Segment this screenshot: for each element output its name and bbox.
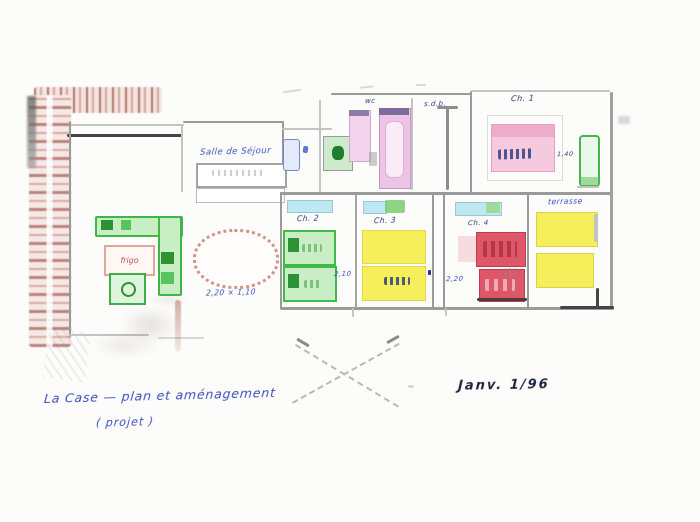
pencil-mark bbox=[369, 152, 377, 166]
bed-topright-pillow-band bbox=[492, 125, 554, 137]
sideboard-lower bbox=[196, 188, 285, 203]
bed-red-1 bbox=[476, 232, 526, 267]
t-wall-cap bbox=[437, 106, 458, 109]
bed-yellow-1 bbox=[362, 230, 426, 264]
wall-living-top-inner bbox=[67, 134, 183, 137]
lounger-2 bbox=[536, 253, 594, 288]
bed-red-pillow-pale bbox=[458, 236, 476, 262]
bed-green-2 bbox=[283, 266, 337, 302]
cross-speck bbox=[408, 385, 414, 388]
pencil-tick-b bbox=[416, 84, 426, 86]
kitchen-appliance-mark-1 bbox=[101, 220, 113, 230]
bed-green-1 bbox=[283, 230, 336, 266]
bedroom-green-label: Ch. 2 bbox=[297, 214, 320, 224]
t-wall-vertical bbox=[446, 108, 449, 190]
wall-room-divider-2b bbox=[443, 194, 445, 308]
fridge-label: frigo bbox=[120, 256, 138, 265]
wall-bath-divider-right bbox=[411, 98, 413, 190]
floorplan-scan: Salle de Séjour frigo 2,20 × 1,10 wc s.d… bbox=[0, 0, 700, 522]
pencil-smudge-3 bbox=[148, 292, 188, 308]
wall-room-divider-1 bbox=[355, 194, 357, 308]
window-yellow-room bbox=[363, 201, 387, 214]
stove-burner bbox=[121, 282, 136, 297]
wall-block-left bbox=[280, 192, 282, 309]
dim-green-room: 2,10 bbox=[334, 270, 352, 278]
bed-red-2-base-line bbox=[477, 298, 527, 301]
ink-dot bbox=[302, 146, 308, 154]
sink bbox=[283, 139, 300, 171]
bed-topright-ink-scribble bbox=[498, 148, 532, 159]
stove bbox=[109, 273, 146, 305]
wall-stub-2 bbox=[445, 308, 447, 316]
bed-red-1-marks bbox=[483, 241, 517, 257]
bathtub bbox=[379, 108, 411, 189]
wall-living-left bbox=[69, 121, 71, 337]
washer-drum bbox=[332, 146, 344, 160]
lounger-1 bbox=[536, 212, 598, 247]
door-threshold-line bbox=[577, 186, 599, 188]
kitchen-appliance-mark-3 bbox=[161, 252, 174, 264]
shelf-line bbox=[282, 128, 332, 130]
window-green-room bbox=[287, 200, 333, 213]
bed-topright bbox=[491, 124, 555, 172]
window-yellow-room-shutter bbox=[385, 200, 405, 213]
bedroom-yellow-label: Ch. 3 bbox=[374, 216, 397, 226]
bedroom-topright-label: Ch. 1 bbox=[511, 94, 535, 104]
pencil-tick-c bbox=[283, 89, 301, 93]
wall-living-top-right bbox=[183, 121, 283, 123]
window-red-room-shutter bbox=[486, 203, 500, 213]
kitchen-appliance-mark-4 bbox=[161, 272, 174, 284]
wall-house-right bbox=[610, 92, 613, 309]
wall-bath-divider-left bbox=[319, 100, 321, 192]
shower bbox=[349, 110, 371, 162]
pencil-smudge-2 bbox=[90, 330, 160, 360]
date-note: Janv. 1/96 bbox=[458, 377, 550, 394]
pencil-blob-right bbox=[618, 116, 630, 124]
ink-dots-yellow-room bbox=[428, 270, 431, 275]
lounger-1-edge bbox=[594, 214, 598, 242]
dim-red-room: 2,20 bbox=[446, 275, 464, 283]
wall-corridor bbox=[280, 192, 612, 195]
wall-entry-divider bbox=[181, 124, 183, 192]
green-door-sill bbox=[581, 177, 598, 185]
wall-bath-top bbox=[331, 93, 471, 95]
shower-head-bar bbox=[349, 110, 369, 116]
table-note: 2,20 × 1,10 bbox=[206, 287, 257, 297]
green-door bbox=[579, 135, 600, 187]
kitchen-appliance-mark-2 bbox=[121, 220, 131, 230]
wall-room-divider-3 bbox=[527, 194, 529, 308]
bathtub-faucet-bar bbox=[379, 108, 409, 115]
caption-line1: La Case — plan et aménagement bbox=[43, 385, 276, 406]
caption-line2: ( projet ) bbox=[95, 415, 154, 430]
fridge: frigo bbox=[104, 245, 155, 276]
wall-stub-1 bbox=[352, 308, 354, 317]
bed-yellow-2 bbox=[362, 266, 426, 301]
wall-bath-right bbox=[470, 91, 472, 193]
bed-note-topright: 1,40 bbox=[557, 150, 574, 158]
bed-green-2-marks bbox=[304, 280, 322, 288]
pencil-tick-a bbox=[360, 85, 374, 88]
wall-living-top-outer bbox=[70, 124, 184, 126]
wall-room-divider-2a bbox=[432, 194, 434, 308]
bed-red-2-marks bbox=[485, 279, 515, 291]
living-room-label: Salle de Séjour bbox=[200, 146, 272, 158]
pencil-specks-terrace bbox=[504, 268, 518, 278]
dining-table bbox=[193, 229, 279, 289]
bathtub-basin bbox=[385, 121, 404, 178]
corner-reinforced-h bbox=[560, 306, 614, 309]
bed-green-2-pillow bbox=[288, 274, 299, 288]
bed-green-1-pillow bbox=[288, 238, 299, 252]
wall-topright-top bbox=[471, 90, 610, 92]
bed-yellow-2-ink-marks bbox=[384, 277, 410, 285]
terrace-label: terrasse bbox=[548, 197, 583, 207]
bedroom-red-label: Ch. 4 bbox=[468, 219, 489, 228]
pencil-shadow-smudge bbox=[27, 96, 36, 168]
brown-pencil-stroke bbox=[175, 300, 181, 352]
bed-green-1-marks bbox=[302, 244, 322, 252]
sideboard-pencil-scribble bbox=[212, 170, 264, 176]
bath-label-wc: wc bbox=[365, 97, 376, 105]
